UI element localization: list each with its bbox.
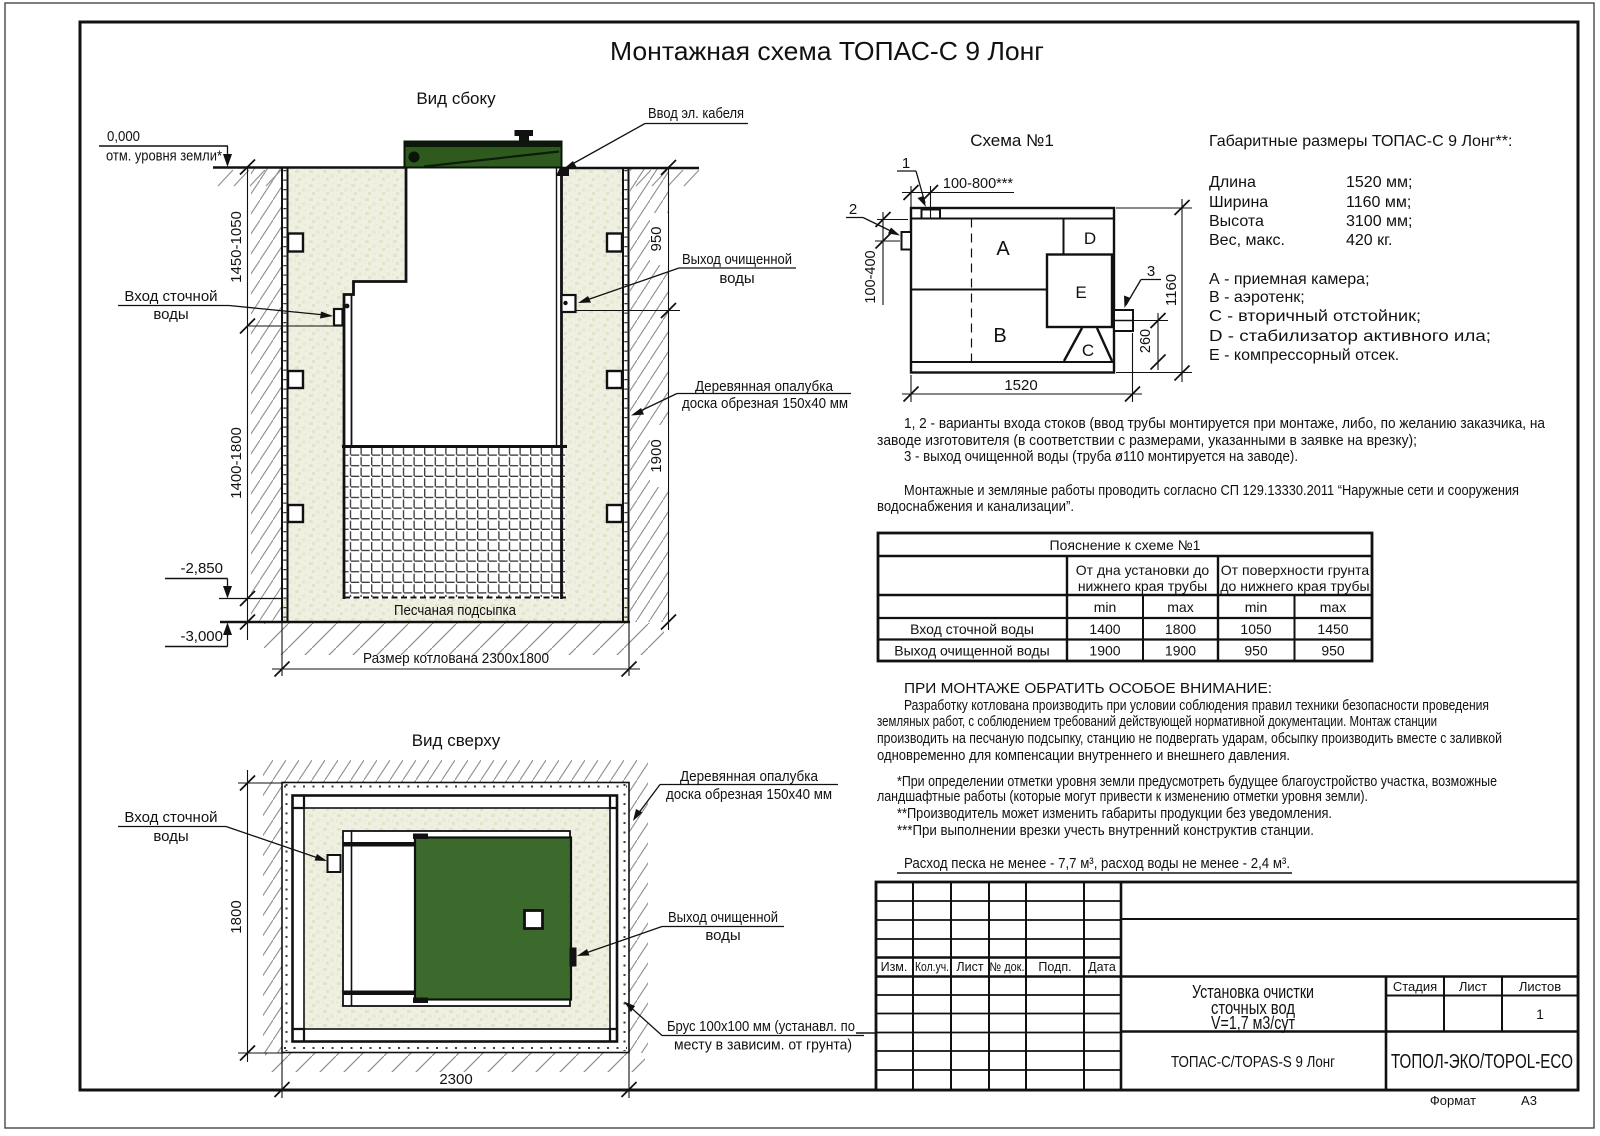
svg-text:Схема №1: Схема №1 — [970, 131, 1054, 150]
svg-text:1050: 1050 — [1240, 621, 1271, 637]
svg-text:2300: 2300 — [439, 1071, 472, 1088]
svg-text:A: A — [996, 238, 1010, 260]
svg-text:B: B — [993, 325, 1006, 347]
svg-text:1520 мм;: 1520 мм; — [1346, 174, 1412, 191]
svg-text:1520: 1520 — [1004, 377, 1037, 394]
svg-text:1: 1 — [1536, 1006, 1544, 1022]
svg-text:нижнего края трубы: нижнего края трубы — [1078, 578, 1207, 594]
svg-text:max: max — [1167, 599, 1193, 615]
svg-text:воды: воды — [153, 306, 188, 323]
svg-text:Расход песка не менее - 7,7 м³: Расход песка не менее - 7,7 м³, расход в… — [904, 855, 1290, 872]
svg-text:3100 мм;: 3100 мм; — [1346, 213, 1412, 230]
svg-text:Выход очищенной: Выход очищенной — [682, 251, 792, 268]
svg-text:ТОПАС-С/TOPAS-S 9 Лонг: ТОПАС-С/TOPAS-S 9 Лонг — [1171, 1054, 1335, 1071]
svg-text:3: 3 — [1147, 263, 1155, 280]
svg-text:1800: 1800 — [228, 900, 245, 933]
svg-text:-3,000: -3,000 — [180, 628, 223, 645]
svg-text:Деревянная опалубка: Деревянная опалубка — [680, 768, 819, 785]
svg-text:В - аэротенк;: В - аэротенк; — [1209, 289, 1305, 306]
svg-text:Изм.: Изм. — [881, 960, 908, 974]
svg-text:земляных работ, с соблюдением: земляных работ, с соблюдением требований… — [877, 713, 1437, 730]
svg-text:Формат: Формат — [1430, 1093, 1476, 1108]
svg-text:Брус 100х100 мм (устанавл. по: Брус 100х100 мм (устанавл. по — [667, 1018, 855, 1035]
svg-text:2: 2 — [849, 201, 857, 218]
svg-text:Лист: Лист — [1459, 979, 1487, 994]
svg-text:260: 260 — [1138, 329, 1154, 353]
svg-text:Вид сбоку: Вид сбоку — [416, 89, 496, 108]
svg-text:Разработку котлована производи: Разработку котлована производить при усл… — [904, 697, 1489, 714]
svg-text:Е - компрессорный отсек.: Е - компрессорный отсек. — [1209, 347, 1399, 364]
svg-text:одновременно для компенсации в: одновременно для компенсации внутреннего… — [877, 747, 1290, 764]
svg-text:1800: 1800 — [1165, 621, 1196, 637]
svg-text:1, 2 - варианты входа стоков: 1, 2 - варианты входа стоков (ввод трубы… — [904, 415, 1546, 432]
svg-text:Длина: Длина — [1209, 174, 1256, 191]
svg-text:V=1,7 м3/сут: V=1,7 м3/сут — [1211, 1013, 1295, 1033]
svg-text:отм. уровня земли*: отм. уровня земли* — [106, 149, 222, 165]
svg-text:до нижнего края трубы: до нижнего края трубы — [1220, 578, 1369, 594]
svg-text:От поверхности грунта: От поверхности грунта — [1221, 562, 1370, 578]
svg-text:Вес, макс.: Вес, макс. — [1209, 232, 1285, 249]
svg-text:доска обрезная 150х40 мм: доска обрезная 150х40 мм — [682, 395, 848, 412]
svg-text:950: 950 — [1244, 643, 1268, 659]
svg-text:Ввод эл. кабеля: Ввод эл. кабеля — [648, 105, 744, 122]
svg-text:1450: 1450 — [1317, 621, 1348, 637]
svg-text:доска обрезная 150х40 мм: доска обрезная 150х40 мм — [666, 786, 832, 803]
svg-text:Габаритные размеры ТОПАС-С 9 Л: Габаритные размеры ТОПАС-С 9 Лонг**: — [1209, 133, 1512, 150]
svg-text:А3: А3 — [1521, 1093, 1537, 1108]
svg-text:**Производитель может изменить: **Производитель может изменить габариты … — [897, 805, 1332, 822]
svg-text:1160 мм;: 1160 мм; — [1346, 194, 1411, 211]
svg-text:D - стабилизатор активного ила: D - стабилизатор активного ила; — [1209, 328, 1491, 345]
svg-text:950: 950 — [1321, 643, 1345, 659]
svg-text:0,000: 0,000 — [107, 128, 140, 145]
svg-text:Подп.: Подп. — [1038, 960, 1071, 974]
svg-text:1160: 1160 — [1163, 274, 1180, 306]
svg-text:воды: воды — [719, 270, 754, 287]
svg-text:C: C — [1082, 341, 1094, 360]
svg-text:№ док.: № док. — [990, 960, 1025, 974]
svg-text:100-800***: 100-800*** — [943, 176, 1013, 192]
svg-text:месту в зависим. от грунта): месту в зависим. от грунта) — [674, 1037, 852, 1054]
svg-text:От дна установки до: От дна установки до — [1076, 562, 1210, 578]
svg-text:950: 950 — [648, 226, 665, 251]
svg-text:Вид сверху: Вид сверху — [412, 731, 501, 750]
svg-text:1: 1 — [902, 155, 910, 172]
svg-text:1900: 1900 — [648, 439, 665, 472]
svg-text:водоснабжения и канализации”.: водоснабжения и канализации”. — [877, 498, 1074, 515]
svg-text:100-400: 100-400 — [863, 250, 879, 303]
svg-text:ТОПОЛ-ЭКО/TOPOL-ECO: ТОПОЛ-ЭКО/TOPOL-ECO — [1391, 1051, 1573, 1073]
svg-text:производить на песчаную подсып: производить на песчаную подсыпку, станци… — [877, 730, 1502, 747]
svg-text:воды: воды — [153, 828, 188, 845]
svg-text:E: E — [1075, 283, 1086, 302]
svg-text:min: min — [1094, 599, 1117, 615]
svg-text:-2,850: -2,850 — [180, 560, 223, 577]
svg-text:Кол.уч.: Кол.уч. — [915, 960, 949, 974]
svg-text:3 - выход очищенной воды (труб: 3 - выход очищенной воды (труба ø110 мон… — [904, 448, 1298, 465]
svg-text:ПРИ МОНТАЖЕ ОБРАТИТЬ ОСОБОЕ ВН: ПРИ МОНТАЖЕ ОБРАТИТЬ ОСОБОЕ ВНИМАНИЕ: — [904, 680, 1272, 697]
svg-text:Размер котлована 2300х1800: Размер котлована 2300х1800 — [363, 650, 549, 667]
svg-text:Дата: Дата — [1088, 960, 1116, 974]
svg-text:D: D — [1084, 229, 1096, 248]
svg-text:Лист: Лист — [956, 960, 983, 974]
svg-text:Монтажные и земляные работы пр: Монтажные и земляные работы проводить со… — [904, 482, 1519, 499]
svg-text:1450-1050: 1450-1050 — [228, 211, 245, 283]
svg-text:воды: воды — [705, 927, 740, 944]
svg-text:Пояснение к схеме №1: Пояснение к схеме №1 — [1050, 537, 1201, 553]
svg-text:1400-1800: 1400-1800 — [228, 427, 245, 499]
svg-text:1400: 1400 — [1089, 621, 1120, 637]
svg-text:Монтажная схема ТОПАС-С 9 Лонг: Монтажная схема ТОПАС-С 9 Лонг — [610, 36, 1044, 66]
svg-text:заводе изготовителя (в соответ: заводе изготовителя (в соответствии с ра… — [877, 432, 1417, 449]
svg-text:Деревянная опалубка: Деревянная опалубка — [695, 378, 834, 395]
svg-text:Стадия: Стадия — [1393, 979, 1437, 994]
svg-text:Листов: Листов — [1519, 979, 1561, 994]
svg-text:Песчаная подсыпка: Песчаная подсыпка — [394, 603, 517, 619]
svg-text:ландшафтные работы (которые мо: ландшафтные работы (которые могут привес… — [877, 788, 1368, 805]
svg-text:max: max — [1320, 599, 1346, 615]
svg-text:Вход сточной: Вход сточной — [124, 288, 217, 305]
svg-text:1900: 1900 — [1089, 643, 1120, 659]
svg-text:min: min — [1245, 599, 1268, 615]
svg-text:Выход очищенной: Выход очищенной — [668, 909, 778, 926]
svg-text:А - приемная камера;: А - приемная камера; — [1209, 271, 1370, 288]
svg-text:Высота: Высота — [1209, 213, 1264, 230]
svg-text:С - вторичный отстойник;: С - вторичный отстойник; — [1209, 308, 1421, 325]
svg-text:Ширина: Ширина — [1209, 194, 1268, 211]
svg-text:Вход сточной: Вход сточной — [124, 809, 217, 826]
svg-text:420 кг.: 420 кг. — [1346, 232, 1392, 249]
svg-text:***При выполнении врезки учест: ***При выполнении врезки учесть внутренн… — [897, 822, 1314, 839]
svg-text:Вход сточной воды: Вход сточной воды — [910, 621, 1034, 637]
svg-text:1900: 1900 — [1165, 643, 1196, 659]
svg-text:Выход очищенной воды: Выход очищенной воды — [894, 643, 1049, 659]
